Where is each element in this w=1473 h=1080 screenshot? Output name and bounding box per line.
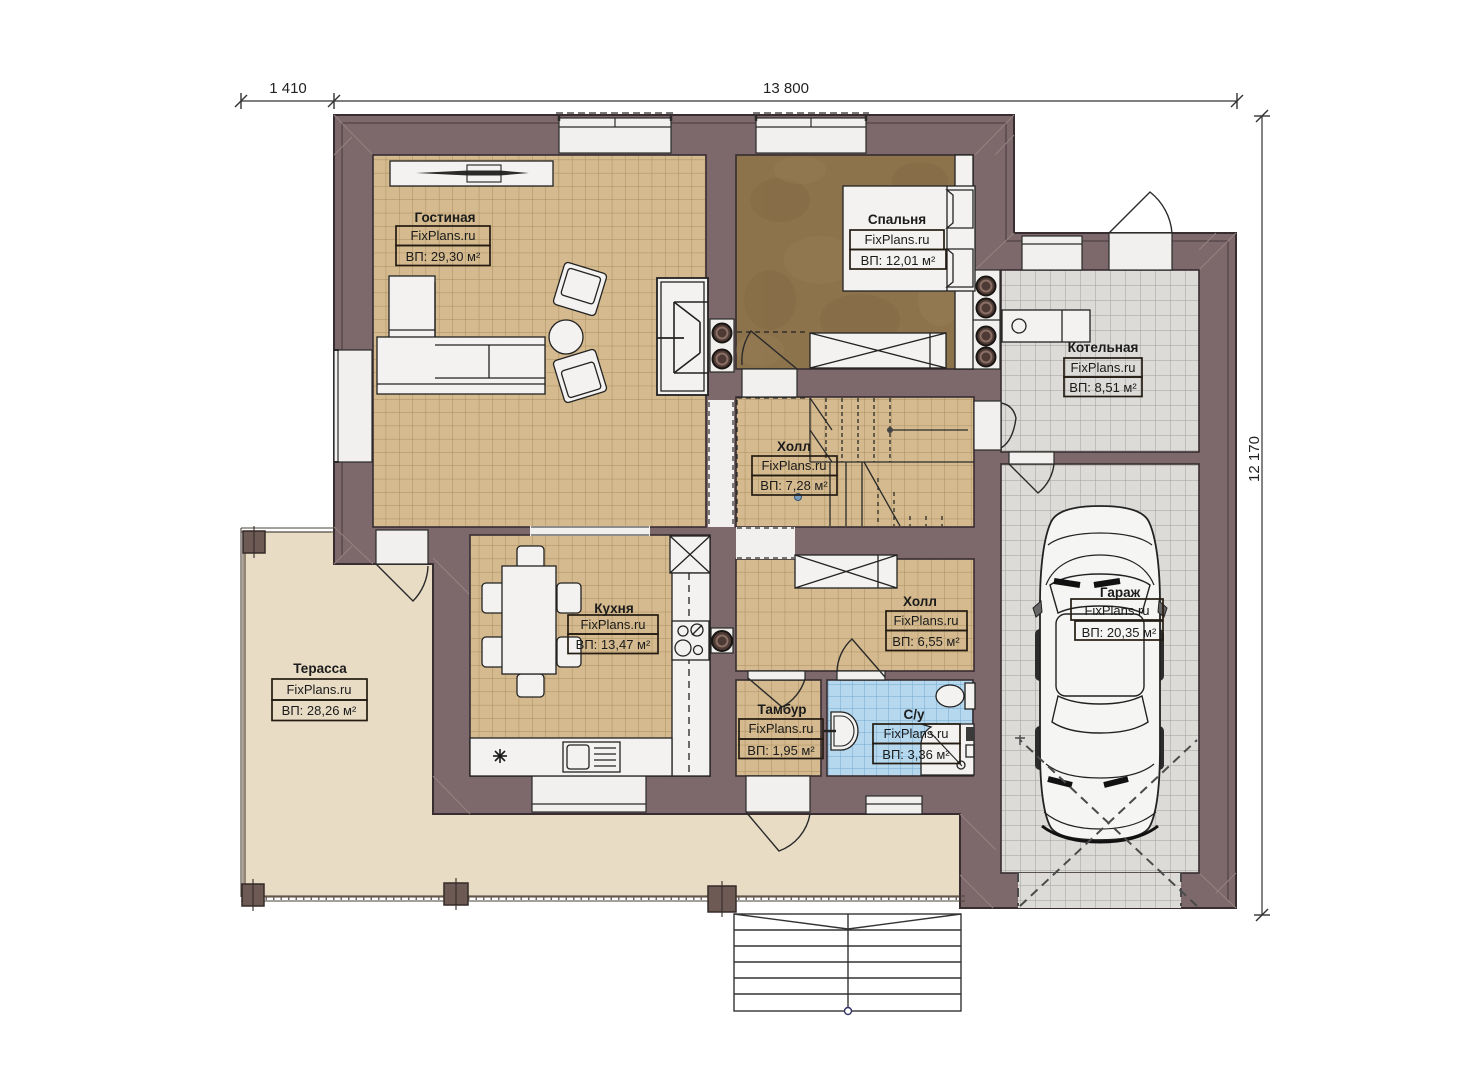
svg-text:Гараж: Гараж [1100, 585, 1141, 600]
svg-text:FixPlans.ru: FixPlans.ru [1070, 360, 1135, 375]
svg-text:ВП: 1,95 м²: ВП: 1,95 м² [747, 743, 815, 758]
svg-text:FixPlans.ru: FixPlans.ru [1084, 603, 1149, 618]
svg-text:FixPlans.ru: FixPlans.ru [883, 726, 948, 741]
svg-text:FixPlans.ru: FixPlans.ru [580, 617, 645, 632]
svg-text:С/у: С/у [903, 707, 925, 722]
svg-text:FixPlans.ru: FixPlans.ru [748, 721, 813, 736]
svg-text:Спальня: Спальня [868, 212, 926, 227]
svg-text:ВП: 13,47 м²: ВП: 13,47 м² [576, 637, 651, 652]
svg-text:ВП: 29,30 м²: ВП: 29,30 м² [406, 249, 481, 264]
svg-text:FixPlans.ru: FixPlans.ru [410, 228, 475, 243]
svg-text:ВП: 20,35 м²: ВП: 20,35 м² [1082, 625, 1157, 640]
svg-text:Терасса: Терасса [293, 661, 347, 676]
svg-text:ВП: 12,01 м²: ВП: 12,01 м² [861, 253, 936, 268]
svg-text:1 410: 1 410 [269, 80, 307, 97]
svg-text:ВП: 28,26 м²: ВП: 28,26 м² [282, 703, 357, 718]
svg-text:Холл: Холл [777, 439, 811, 454]
svg-text:FixPlans.ru: FixPlans.ru [286, 682, 351, 697]
svg-text:13 800: 13 800 [763, 80, 809, 97]
svg-text:Котельная: Котельная [1068, 340, 1139, 355]
svg-text:12 170: 12 170 [1246, 436, 1263, 482]
svg-text:Тамбур: Тамбур [758, 702, 807, 717]
svg-text:FixPlans.ru: FixPlans.ru [893, 613, 958, 628]
svg-text:ВП: 7,28 м²: ВП: 7,28 м² [760, 478, 828, 493]
svg-text:ВП: 3,36 м²: ВП: 3,36 м² [882, 747, 950, 762]
svg-text:FixPlans.ru: FixPlans.ru [761, 458, 826, 473]
svg-text:Кухня: Кухня [594, 601, 633, 616]
svg-text:ВП: 6,55 м²: ВП: 6,55 м² [892, 634, 960, 649]
svg-text:ВП: 8,51 м²: ВП: 8,51 м² [1069, 380, 1137, 395]
svg-text:FixPlans.ru: FixPlans.ru [864, 232, 929, 247]
svg-text:Холл: Холл [903, 594, 937, 609]
svg-text:Гостиная: Гостиная [414, 210, 475, 225]
